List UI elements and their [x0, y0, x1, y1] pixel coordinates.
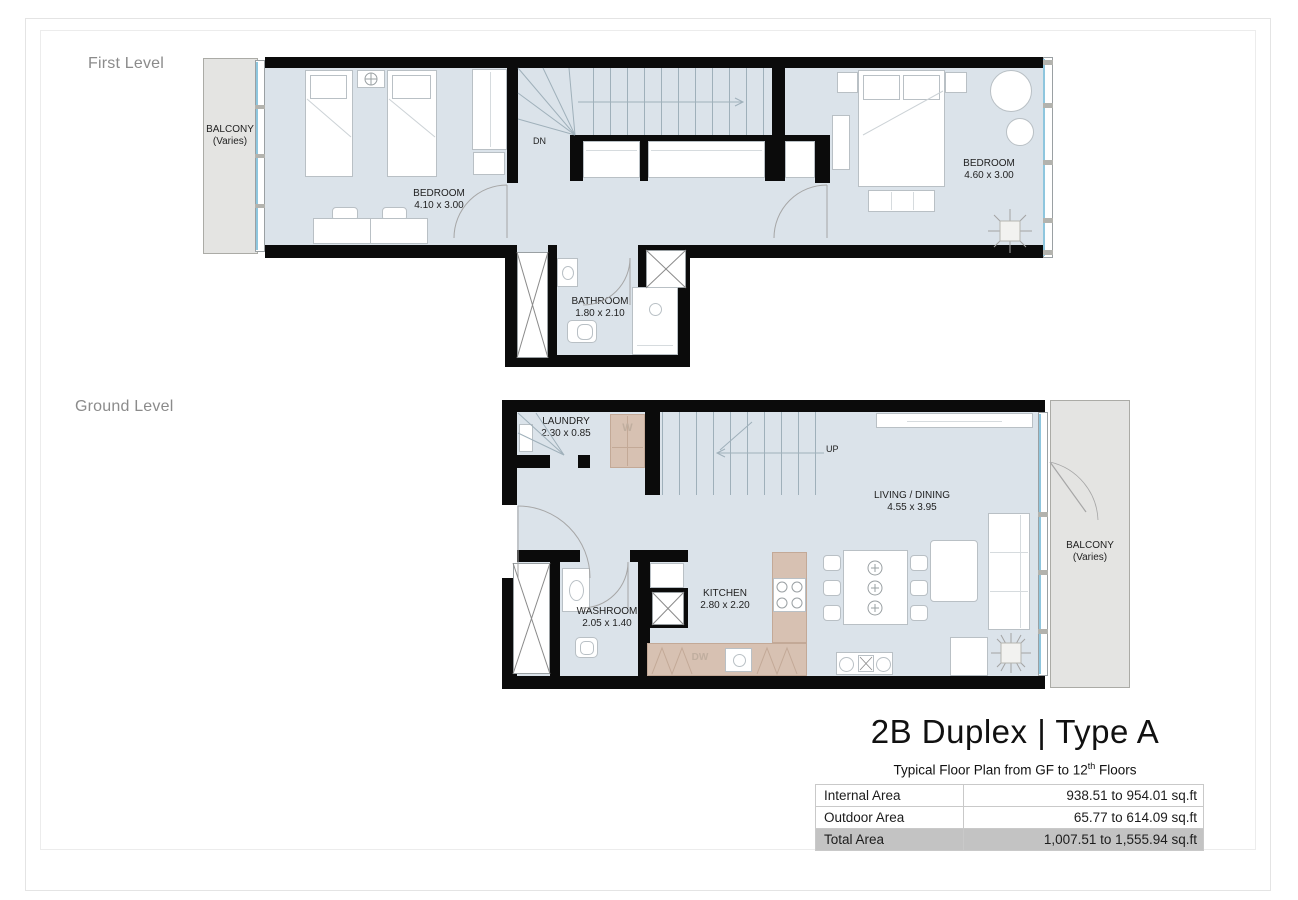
wall — [765, 135, 785, 181]
ground-level-label: Ground Level — [75, 398, 173, 416]
bed-bench — [868, 190, 935, 212]
laundry-label: LAUNDRY 2.30 x 0.85 — [516, 416, 616, 440]
shelf — [473, 152, 505, 175]
pillow — [310, 75, 347, 99]
table-row: Outdoor Area 65.77 to 614.09 sq.ft — [816, 807, 1203, 829]
stairs-up-label: UP — [826, 444, 839, 454]
dining-chair — [910, 605, 928, 621]
wall — [690, 245, 1043, 258]
stove — [773, 578, 806, 612]
hall-closet — [583, 141, 640, 178]
window-mullion — [255, 105, 265, 109]
wall — [505, 245, 517, 367]
wall — [502, 676, 1045, 689]
area-row-label: Total Area — [816, 829, 964, 850]
pillow — [392, 75, 431, 99]
bedroom-right-label: BEDROOM 4.60 x 3.00 — [929, 158, 1049, 182]
window-mullion — [1043, 250, 1053, 255]
wall — [640, 135, 648, 181]
dining-chair — [823, 605, 841, 621]
kitchen-label: KITCHEN 2.80 x 2.20 — [675, 588, 775, 612]
area-table: Internal Area 938.51 to 954.01 sq.ft Out… — [815, 784, 1204, 851]
pillow — [863, 75, 900, 100]
round-chair — [990, 70, 1032, 112]
dishwasher-letter: DW — [686, 652, 714, 663]
area-row-value: 938.51 to 954.01 sq.ft — [964, 785, 1203, 806]
window-mullion — [1043, 60, 1053, 65]
washroom-label: WASHROOM 2.05 x 1.40 — [557, 606, 657, 630]
sofa-chaise — [950, 637, 988, 676]
hall-closet — [648, 141, 765, 178]
first-balcony — [203, 58, 258, 254]
toilet — [567, 320, 597, 343]
pillow — [903, 75, 940, 100]
dining-chair — [910, 555, 928, 571]
twin-bed — [305, 70, 353, 177]
dining-chair — [823, 580, 841, 596]
window-mullion — [1043, 218, 1053, 223]
wall — [815, 135, 830, 183]
window-mullion — [1043, 103, 1053, 108]
area-row-value: 1,007.51 to 1,555.94 sq.ft — [964, 829, 1203, 850]
nightstand — [837, 72, 858, 93]
table-row: Internal Area 938.51 to 954.01 sq.ft — [816, 785, 1203, 807]
stairs-dn-label: DN — [533, 136, 546, 146]
bathroom-sink — [557, 258, 578, 287]
table-row-total: Total Area 1,007.51 to 1,555.94 sq.ft — [816, 829, 1203, 851]
island-cooktop — [858, 655, 874, 672]
armchair — [930, 540, 978, 602]
window-mullion — [255, 204, 265, 208]
wall — [570, 135, 583, 181]
shaft-box — [513, 563, 550, 674]
shaft-box — [646, 250, 686, 288]
toilet — [575, 637, 598, 658]
area-row-value: 65.77 to 614.09 sq.ft — [964, 807, 1203, 828]
area-row-label: Outdoor Area — [816, 807, 964, 828]
dresser — [832, 115, 850, 170]
dining-chair — [910, 580, 928, 596]
window-mullion — [1038, 512, 1048, 517]
nightstand — [945, 72, 967, 93]
first-balcony-label: BALCONY (Varies) — [197, 124, 263, 148]
wall — [517, 455, 550, 468]
wall — [265, 57, 1043, 68]
first-level-plan: BALCONY (Varies) — [203, 57, 1055, 369]
area-row-label: Internal Area — [816, 785, 964, 806]
desk — [370, 218, 428, 244]
window-mullion — [1038, 629, 1048, 634]
twin-bed — [387, 70, 437, 177]
wall — [772, 58, 785, 135]
ground-right-window-glass — [1039, 414, 1041, 674]
first-level-label: First Level — [88, 55, 164, 73]
bedroom-closet — [785, 141, 815, 178]
wall — [645, 412, 660, 495]
kitchen-closet — [650, 563, 684, 588]
dining-chair — [823, 555, 841, 571]
floorplan-page: First Level Ground Level BALCONY (Varies… — [0, 0, 1298, 900]
door-opening — [583, 245, 630, 258]
unit-subtitle: Typical Floor Plan from GF to 12th Floor… — [820, 761, 1210, 778]
sofa — [988, 513, 1030, 630]
bar-stool — [839, 657, 854, 672]
tv-console — [876, 413, 1033, 428]
wall — [573, 135, 830, 141]
bedroom-left-label: BEDROOM 4.10 x 3.00 — [379, 188, 499, 212]
wall — [517, 550, 580, 562]
window-mullion — [255, 154, 265, 158]
desk — [313, 218, 371, 244]
wall — [265, 245, 505, 258]
dining-table — [843, 550, 908, 625]
wall — [630, 550, 688, 562]
ground-balcony-label: BALCONY (Varies) — [1050, 540, 1130, 564]
nightstand — [357, 70, 385, 88]
wall — [502, 400, 1045, 412]
wardrobe — [472, 69, 507, 150]
wall — [578, 455, 590, 468]
living-dining-label: LIVING / DINING 4.55 x 3.95 — [837, 490, 987, 514]
unit-title: 2B Duplex | Type A — [820, 713, 1210, 751]
pouf — [1006, 118, 1034, 146]
bathroom-label: BATHROOM 1.80 x 2.10 — [540, 296, 660, 320]
wall — [507, 58, 518, 183]
ground-stairs-treads — [662, 412, 824, 495]
kitchen-sink — [725, 648, 752, 672]
bar-stool — [876, 657, 891, 672]
window-mullion — [1038, 570, 1048, 575]
first-stairs-treads — [593, 68, 772, 135]
ground-level-plan: BALCONY (Varies) UP W LAUNDRY 2.30 x 0.8… — [502, 400, 1134, 692]
